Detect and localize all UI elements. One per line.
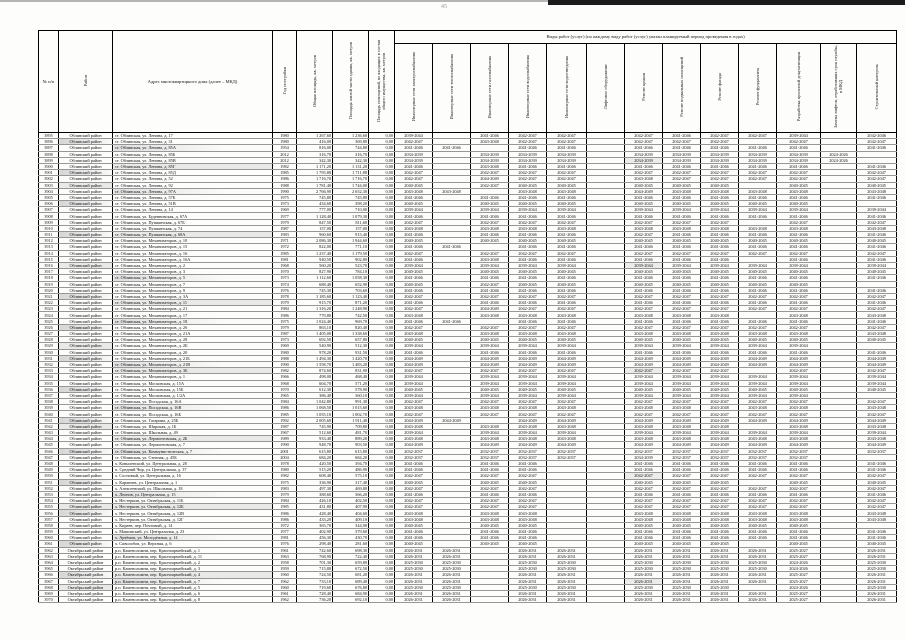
table-cell: 2026-2031 xyxy=(547,597,587,603)
table-cell: 2026-2031 xyxy=(857,597,897,603)
col-header-foundation-label: Ремонт фундамента xyxy=(755,68,760,105)
col-header-water-network: Инженерные сети водоснабжения xyxy=(509,44,547,133)
table-cell: 2025-2027 xyxy=(777,597,821,603)
table-cell xyxy=(587,597,625,603)
table-cell: 692,10 xyxy=(333,597,369,603)
col-header-sewer-label: Инженерные сети водоотведения xyxy=(564,56,569,118)
col-header-water-label: Инженерные сети водоснабжения xyxy=(525,55,530,118)
col-header-build-year: Год постройки xyxy=(273,31,297,133)
col-header-construction-control: Строительный контроль xyxy=(857,44,897,133)
table-cell: 2026-2031 xyxy=(663,597,701,603)
col-header-facade-repair: Ремонт фасада xyxy=(701,44,739,133)
col-header-lift-equipment: Лифтовое оборудование xyxy=(587,44,625,133)
table-cell xyxy=(471,597,509,603)
table-cell: 2026-2031 xyxy=(625,597,663,603)
col-header-living-area-label: Площадь жилой части здания, кв. метров xyxy=(348,42,353,119)
col-header-nonres-area-label: Площадь помещений, не входящих в состав … xyxy=(376,39,386,123)
col-header-living-area: Площадь жилой части здания, кв. метров xyxy=(333,31,369,133)
table-cell: 2026-2031 xyxy=(739,597,777,603)
col-header-design-docs: Разработка проектной документации xyxy=(777,44,821,133)
col-header-facade-label: Ремонт фасада xyxy=(717,73,722,101)
col-header-lift-replacement: Замена лифтов, отработавших срок службы,… xyxy=(821,44,857,133)
table-cell xyxy=(821,597,857,603)
col-header-district: Район xyxy=(59,31,113,133)
page-number: 45 xyxy=(441,4,447,10)
table-cell: 2026-2031 xyxy=(701,597,739,603)
col-header-lift-label: Лифтовое оборудование xyxy=(603,64,608,109)
col-header-foundation-repair: Ремонт фундамента xyxy=(739,44,777,133)
table-body: 3895Обливский районст. Обливская, ул. Ле… xyxy=(39,133,897,603)
col-header-address: Адрес многоквартирного дома (далее – МКД… xyxy=(113,31,273,133)
table-cell: 1962 xyxy=(273,597,297,603)
scan-artifact-bar xyxy=(548,0,905,5)
col-header-build-year-label: Год постройки xyxy=(282,67,287,94)
table-cell: р.п. Каменоломни, пер. Красноармейский, … xyxy=(113,597,273,603)
col-header-district-label: Район xyxy=(83,75,88,86)
col-header-heating-label: Инженерные сети теплоснабжения xyxy=(449,54,454,119)
table-cell: 3970 xyxy=(39,597,59,603)
col-header-basement-label: Ремонт подвальных помещений xyxy=(679,57,684,117)
scanned-page: 45 № п/п Район Адрес многоквартирного до… xyxy=(0,0,905,640)
col-header-lift-replacement-label: Замена лифтов, отработавших срок службы,… xyxy=(833,45,843,129)
col-header-roof-repair: Ремонт крыши xyxy=(625,44,663,133)
table-cell: 2026-2031 xyxy=(395,597,433,603)
table-cell: Октябрьский район xyxy=(59,597,113,603)
col-header-gas-network: Инженерные сети газоснабжения xyxy=(471,44,509,133)
col-header-nonres-area: Площадь помещений, не входящих в состав … xyxy=(369,31,395,133)
col-header-number: № п/п xyxy=(39,31,59,133)
col-header-basement-repair: Ремонт подвальных помещений xyxy=(663,44,701,133)
table-row: 3970Октябрьский районр.п. Каменоломни, п… xyxy=(39,597,897,603)
table-cell: 2026-2031 xyxy=(509,597,547,603)
col-header-roof-label: Ремонт крыши xyxy=(641,73,646,101)
col-header-gas-label: Инженерные сети газоснабжения xyxy=(487,56,492,118)
col-header-design-label: Разработка проектной документации xyxy=(796,52,801,121)
col-header-total-area-label: Общая площадь, кв. метров xyxy=(312,55,317,107)
table-cell: 736,20 xyxy=(297,597,333,603)
col-header-control-label: Строительный контроль xyxy=(874,64,879,109)
col-header-electric-network: Инженерные сети электроснабжения xyxy=(395,44,433,133)
table-header: № п/п Район Адрес многоквартирного дома … xyxy=(39,31,897,133)
table-cell: 0,00 xyxy=(369,597,395,603)
col-header-electric-label: Инженерные сети электроснабжения xyxy=(411,52,416,121)
col-header-sewer-network: Инженерные сети водоотведения xyxy=(547,44,587,133)
col-header-total-area: Общая площадь, кв. метров xyxy=(297,31,333,133)
works-span-header: Виды работ (услуг) (по каждому виду рабо… xyxy=(395,31,897,44)
repair-program-table: № п/п Район Адрес многоквартирного дома … xyxy=(38,30,897,603)
table-cell: 2026-2031 xyxy=(433,597,471,603)
col-header-heating-network: Инженерные сети теплоснабжения xyxy=(433,44,471,133)
